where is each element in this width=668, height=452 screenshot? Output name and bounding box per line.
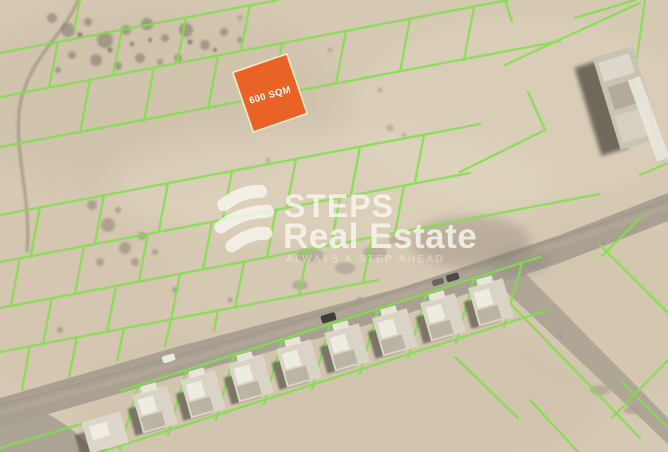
listing-map-image[interactable]: 600 SQM STEPS Real Estate ALWAYS A STEP … [0,0,668,452]
satellite-map: 600 SQM STEPS Real Estate ALWAYS A STEP … [0,0,668,452]
watermark-brand-bottom: Real Estate [283,217,477,256]
watermark-tagline: ALWAYS A STEP AHEAD [286,254,445,265]
